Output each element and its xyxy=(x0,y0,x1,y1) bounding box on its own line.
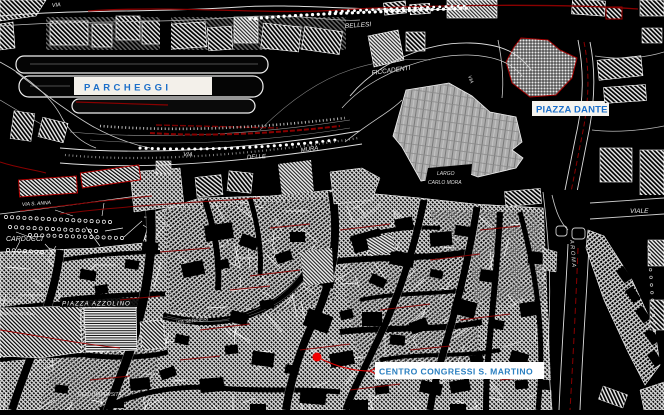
svg-text:CENTRO CONGRESSI S. MARTINO: CENTRO CONGRESSI S. MARTINO xyxy=(379,367,533,377)
svg-text:VIA: VIA xyxy=(52,2,62,9)
svg-text:PIAZZA AZZOLINO: PIAZZA AZZOLINO xyxy=(62,301,131,308)
svg-text:PIAZZALE: PIAZZALE xyxy=(0,298,22,303)
svg-text:LARGO: LARGO xyxy=(437,171,455,177)
svg-text:VIA: VIA xyxy=(183,152,193,158)
svg-text:DELLE: DELLE xyxy=(247,154,267,161)
svg-text:CARDUCCI: CARDUCCI xyxy=(6,236,43,243)
svg-text:PARCHEGGI: PARCHEGGI xyxy=(84,83,171,94)
svg-text:MICHELANGELO: MICHELANGELO xyxy=(0,311,36,316)
svg-text:CARLO MORA: CARLO MORA xyxy=(428,180,462,186)
svg-text:VIALE: VIALE xyxy=(630,208,649,215)
svg-text:PIAZZA DANTE: PIAZZA DANTE xyxy=(536,105,608,116)
svg-text:DELL UNIVERSITA: DELL UNIVERSITA xyxy=(78,392,122,398)
